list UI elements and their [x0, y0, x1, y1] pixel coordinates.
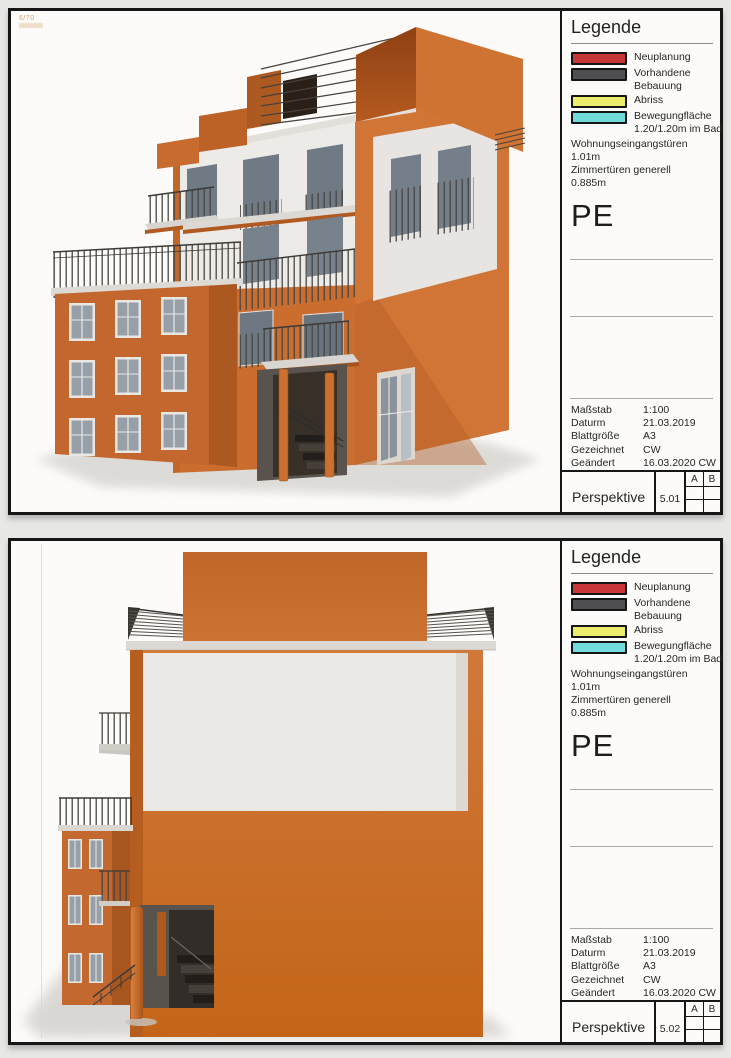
note-line: 1.01m	[571, 681, 715, 694]
sheet-titlebar: Perspektive 5.01 A B	[562, 470, 720, 512]
info-label: Gezeichnet	[571, 974, 643, 987]
legend-label: Abriss	[634, 94, 663, 106]
info-value: 21.03.2019	[643, 947, 717, 960]
info-value: CW	[643, 444, 717, 457]
side-balcony	[99, 713, 130, 755]
info-label: Daturm	[571, 947, 643, 960]
balcony-slab	[99, 744, 130, 750]
note-line: 0.885m	[571, 177, 715, 190]
legend-swatch-vorhandene	[571, 598, 627, 611]
legend-label: Bewegungfläche	[634, 640, 712, 652]
info-value: A3	[643, 960, 717, 973]
legend-item: Neuplanung	[571, 51, 715, 65]
info-value: CW	[643, 974, 717, 987]
legend-label-line2: Bebauung	[634, 610, 682, 622]
rendering-elevation-perspective	[11, 541, 560, 1042]
plan-code: PE	[571, 198, 715, 234]
note-line: Zimmertüren generell	[571, 694, 715, 707]
entrance-passage	[125, 905, 214, 1026]
balcony-railing	[388, 185, 424, 243]
info-label: Daturm	[571, 417, 643, 430]
stamp-blur-mark	[19, 23, 43, 28]
legend-label: Neuplanung	[634, 51, 691, 63]
sheet-info: Maßstab1:100 Daturm21.03.2019 Blattgröße…	[571, 404, 717, 470]
balcony-railing	[99, 871, 130, 901]
annex-building	[58, 713, 135, 1005]
legend: Legende Neuplanung Vorhandene Bebauung	[571, 547, 715, 764]
annex-building	[51, 242, 243, 467]
legend-swatch-bewegungflaeche	[571, 641, 627, 654]
legend-item: Abriss	[571, 94, 715, 108]
annex-windows	[69, 297, 187, 456]
info-value: 16.03.2020 CW	[643, 457, 717, 470]
entrance-column	[325, 373, 334, 477]
sheet-number: 5.02	[654, 1002, 684, 1042]
sheet-2: Legende Neuplanung Vorhandene Bebauung	[8, 538, 723, 1045]
main-building	[125, 552, 496, 1037]
legend-item: Vorhandene Bebauung	[571, 597, 715, 622]
legend-label-line2: 1.20/1.20m im Bad	[634, 123, 722, 135]
sheet-number: 5.01	[654, 472, 684, 512]
info-value: 1:100	[643, 934, 717, 947]
revision-cell	[703, 1016, 720, 1029]
legend-label-line2: Bebauung	[634, 80, 682, 92]
legend-label-line2: 1.20/1.20m im Bad	[634, 653, 722, 665]
sheet-titlebar: Perspektive 5.02 A B	[562, 1000, 720, 1042]
stamp-text: 6/70	[19, 15, 43, 22]
legend-swatch-vorhandene	[571, 68, 627, 81]
penthouse	[356, 27, 416, 122]
info-label: Blattgröße	[571, 430, 643, 443]
revision-grid: A B	[684, 1002, 720, 1042]
sheet-title: Perspektive	[562, 472, 654, 512]
balcony-railing	[99, 713, 130, 744]
revision-col-b: B	[703, 1002, 720, 1016]
panel-divider	[570, 259, 713, 260]
note-line: 1.01m	[571, 151, 715, 164]
revision-cell	[703, 1029, 720, 1042]
parapet-band	[126, 641, 496, 650]
note-line: Zimmertüren generell	[571, 164, 715, 177]
revision-cell	[703, 499, 720, 512]
note-line: Wohnungseingangstüren	[571, 138, 715, 151]
revision-col-a: A	[686, 472, 703, 486]
sheet-title: Perspektive	[562, 1002, 654, 1042]
revision-cell	[686, 1029, 703, 1042]
entrance-column	[157, 912, 166, 976]
corner-stamp: 6/70	[19, 15, 43, 28]
title-block-1: Legende Neuplanung Vorhandene Bebauung	[560, 11, 720, 512]
revision-cell	[686, 1016, 703, 1029]
revision-col-b: B	[703, 472, 720, 486]
revision-cell	[686, 486, 703, 499]
legend-label: Vorhandene	[634, 597, 691, 609]
info-label: Geändert	[571, 987, 643, 1000]
revision-cell	[703, 486, 720, 499]
legend-title: Legende	[571, 17, 713, 44]
legend-swatch-bewegungflaeche	[571, 111, 627, 124]
legend-swatch-abriss	[571, 95, 627, 108]
entrance-column	[131, 907, 143, 1019]
legend-item: Bewegungfläche 1.20/1.20m im Bad	[571, 640, 715, 665]
legend-item: Abriss	[571, 624, 715, 638]
plan-sheet-page: 6/70 Legende Neuplanung Vorhandene Bebau	[0, 0, 731, 1058]
info-value: 1:100	[643, 404, 717, 417]
building-rendering-1	[11, 11, 560, 512]
panel-divider	[570, 846, 713, 847]
revision-grid: A B	[684, 472, 720, 512]
penthouse	[183, 552, 427, 645]
info-label: Gezeichnet	[571, 444, 643, 457]
legend-item: Bewegungfläche 1.20/1.20m im Bad	[571, 110, 715, 135]
legend-label: Abriss	[634, 624, 663, 636]
note-line: Wohnungseingangstüren	[571, 668, 715, 681]
panel-divider	[570, 316, 713, 317]
roof-terrace-railing	[59, 798, 132, 825]
title-block-2: Legende Neuplanung Vorhandene Bebauung	[560, 541, 720, 1042]
legend-swatch-abriss	[571, 625, 627, 638]
roof-railing-left	[128, 607, 183, 640]
sheet-info: Maßstab1:100 Daturm21.03.2019 Blattgröße…	[571, 934, 717, 1000]
balcony-slab	[99, 901, 130, 906]
legend-title: Legende	[571, 547, 713, 574]
legend-notes: Wohnungseingangstüren 1.01m Zimmertüren …	[571, 138, 715, 190]
panel-divider	[570, 789, 713, 790]
panel-divider	[570, 928, 713, 929]
info-value: A3	[643, 430, 717, 443]
info-label: Maßstab	[571, 404, 643, 417]
sheet-1: 6/70 Legende Neuplanung Vorhandene Bebau	[8, 8, 723, 515]
legend-swatch-neuplanung	[571, 582, 627, 595]
panel-divider	[570, 398, 713, 399]
side-balcony	[99, 871, 130, 906]
info-value: 21.03.2019	[643, 417, 717, 430]
info-value: 16.03.2020 CW	[643, 987, 717, 1000]
info-label: Maßstab	[571, 934, 643, 947]
entrance-column	[279, 369, 288, 481]
plan-code: PE	[571, 728, 715, 764]
legend-notes: Wohnungseingangstüren 1.01m Zimmertüren …	[571, 668, 715, 720]
building-rendering-2	[11, 541, 560, 1042]
roof-railing-right	[427, 607, 494, 640]
legend-swatch-neuplanung	[571, 52, 627, 65]
white-panel	[143, 653, 468, 811]
rendering-3d-perspective: 6/70	[11, 11, 560, 512]
revision-col-a: A	[686, 1002, 703, 1016]
revision-cell	[686, 499, 703, 512]
legend-label: Neuplanung	[634, 581, 691, 593]
legend-item: Vorhandene Bebauung	[571, 67, 715, 92]
legend-label: Vorhandene	[634, 67, 691, 79]
note-line: 0.885m	[571, 707, 715, 720]
legend-item: Neuplanung	[571, 581, 715, 595]
legend-label: Bewegungfläche	[634, 110, 712, 122]
info-label: Blattgröße	[571, 960, 643, 973]
balcony-railing	[435, 177, 474, 235]
info-label: Geändert	[571, 457, 643, 470]
legend: Legende Neuplanung Vorhandene Bebauung	[571, 17, 715, 234]
